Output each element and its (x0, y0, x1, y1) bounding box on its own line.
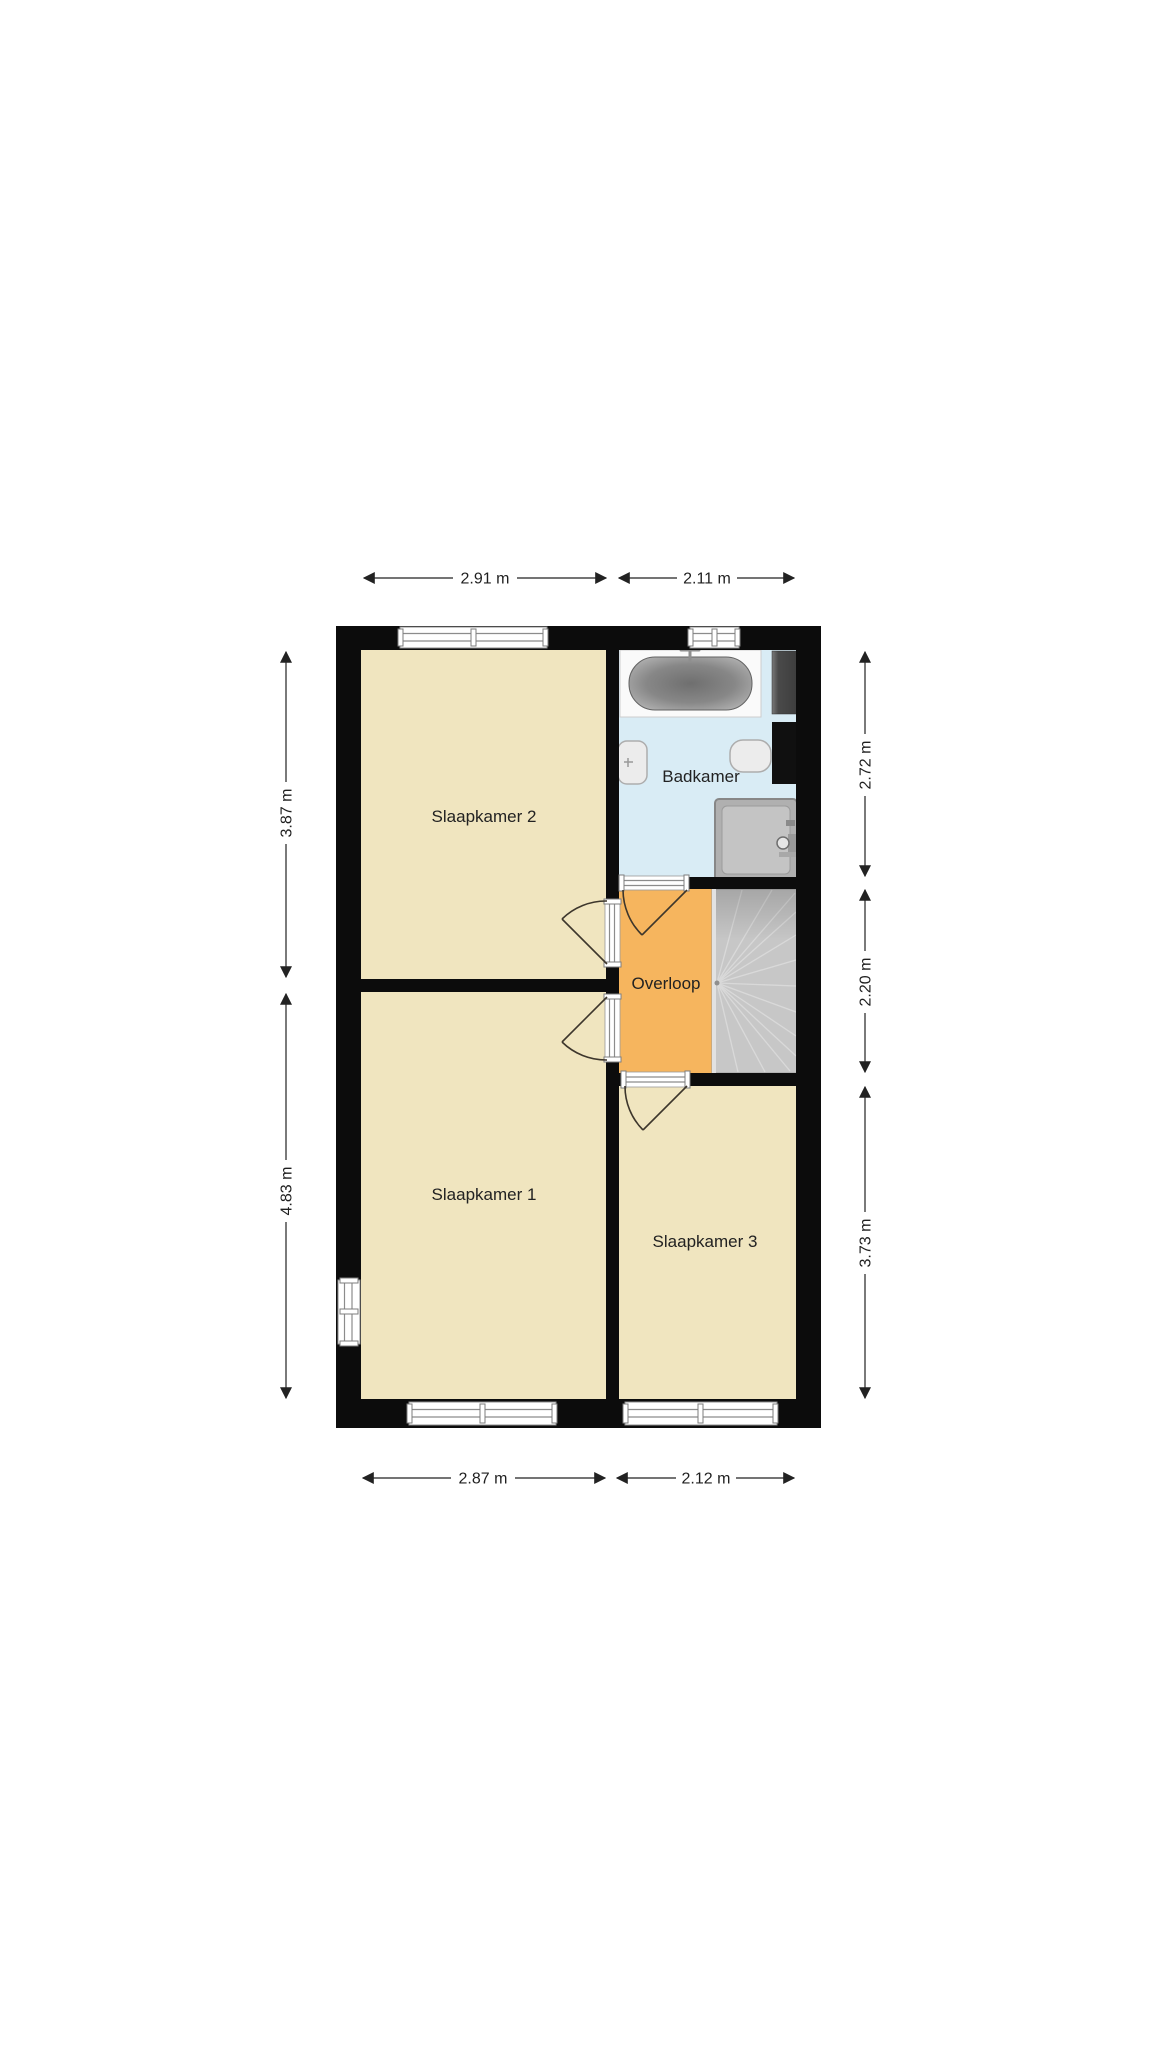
dimension-left-1: 3.87 m (279, 652, 296, 977)
dimension-top-2: 2.11 m (619, 571, 794, 588)
dimension-label: 2.72 m (858, 741, 875, 790)
wall-right (796, 626, 821, 1428)
bathtub (620, 648, 761, 717)
room-label-slaapkamer3: Slaapkamer 3 (653, 1232, 758, 1251)
stair-top-shadow (712, 889, 797, 941)
dimension-label: 2.11 m (683, 571, 731, 588)
dimension-bottom-1: 2.87 m (363, 1471, 605, 1488)
room-label-slaapkamer1: Slaapkamer 1 (432, 1185, 537, 1204)
dimension-bottom-2: 2.12 m (617, 1471, 794, 1488)
dimension-right-3: 3.73 m (858, 1087, 875, 1398)
dimension-label: 3.87 m (279, 789, 296, 838)
room-label-slaapkamer2: Slaapkamer 2 (432, 807, 537, 826)
stair-stringer (712, 889, 716, 1073)
wall-bedroom-divider (360, 979, 607, 992)
floorplan-canvas: 2.91 m 2.11 m 2.87 m 2.12 m 3.87 m 4.83 … (0, 0, 1152, 2048)
window-bottom-slaapkamer3 (623, 1402, 778, 1425)
room-label-badkamer: Badkamer (662, 767, 740, 786)
window-bottom-slaapkamer1 (407, 1402, 557, 1425)
dimension-label: 2.20 m (858, 958, 875, 1007)
stair-pole (715, 981, 720, 986)
floorplan-svg: 2.91 m 2.11 m 2.87 m 2.12 m 3.87 m 4.83 … (0, 0, 1152, 2048)
dimension-label: 2.87 m (459, 1471, 508, 1488)
dimension-label: 3.73 m (858, 1219, 875, 1268)
washbasin (618, 741, 647, 784)
dimension-left-2: 4.83 m (279, 994, 296, 1398)
dimension-label: 4.83 m (279, 1167, 296, 1216)
shower (715, 799, 797, 881)
dimension-label: 2.12 m (682, 1471, 731, 1488)
room-label-overloop: Overloop (632, 974, 701, 993)
window-left-slaapkamer1 (338, 1278, 360, 1346)
window-top-badkamer (688, 627, 740, 648)
dimension-right-1: 2.72 m (858, 652, 875, 876)
dimension-right-2: 2.20 m (858, 890, 875, 1072)
dimension-label: 2.91 m (461, 571, 510, 588)
window-top-slaapkamer2 (398, 627, 548, 648)
staircase (712, 889, 797, 1073)
dimension-top-1: 2.91 m (364, 571, 606, 588)
